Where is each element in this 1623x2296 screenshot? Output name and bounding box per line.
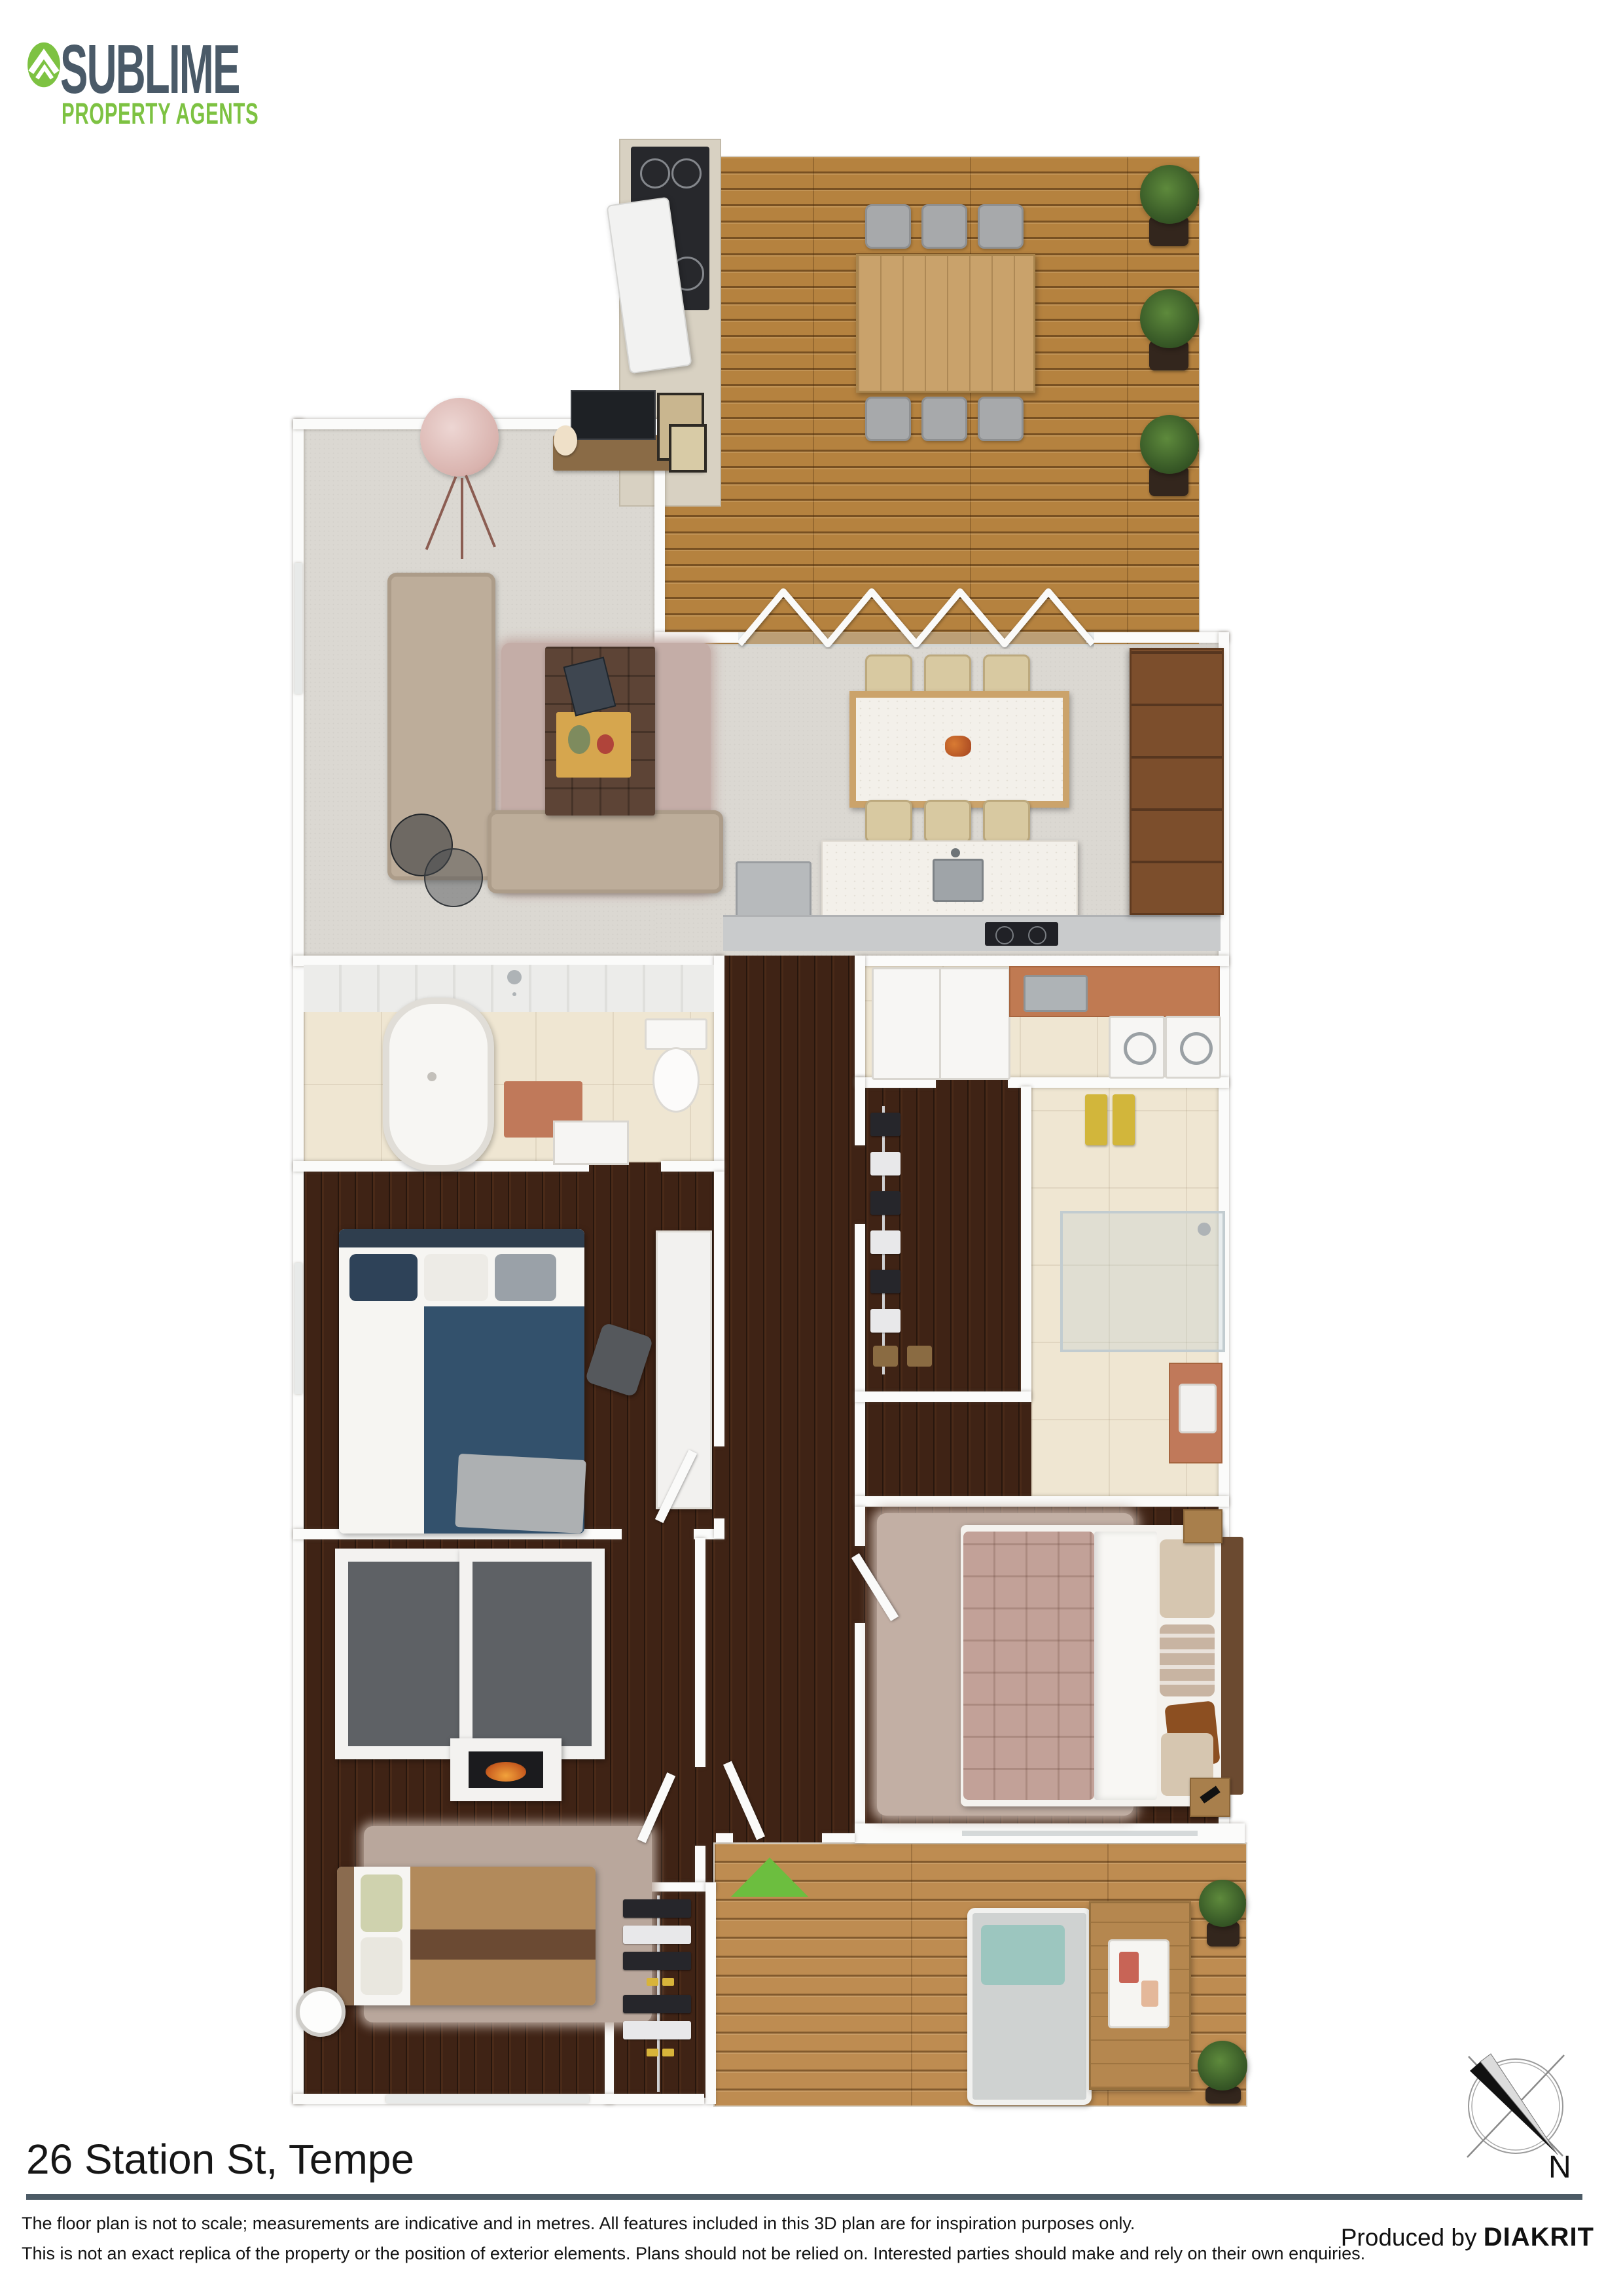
master-duvet-fold: [1094, 1532, 1157, 1800]
compass-label: N: [1548, 2149, 1571, 2185]
wall-robe-ensuite: [1021, 1086, 1031, 1401]
wall-bed3-right-a: [695, 1538, 705, 1767]
laundry-cabinets: [872, 967, 1010, 1080]
tray-decor: [597, 734, 614, 754]
bath-drain: [427, 1072, 437, 1081]
hanging-garment: [623, 1995, 691, 2013]
towel: [1113, 1094, 1135, 1145]
laundry-counter: [1009, 966, 1220, 1017]
tray-decor: [568, 725, 590, 754]
wall-master-bottom-window: [855, 1823, 1245, 1843]
firebox: [469, 1751, 543, 1788]
bed3-pillow: [361, 1874, 402, 1932]
master-quilt: [963, 1532, 1094, 1800]
island-sink: [933, 859, 984, 902]
bed2-headboard: [339, 1229, 584, 1247]
compass: N: [1458, 2046, 1576, 2187]
wall-entry-a: [716, 1833, 733, 1842]
wall-laundry-left: [855, 956, 865, 1086]
kitchen-counter: [723, 915, 1221, 951]
coffee-table: [545, 647, 655, 816]
producer-name: DIAKRIT: [1484, 2223, 1594, 2251]
tray-item: [1141, 1981, 1158, 2007]
picture-frame: [669, 424, 707, 473]
bathtub: [383, 997, 494, 1172]
gold-tray: [556, 712, 631, 778]
window-living-left: [294, 563, 302, 694]
bed3: [337, 1867, 596, 2005]
potted-plant: [1198, 2041, 1247, 2090]
floor-lamp: [420, 398, 499, 476]
wall-bed2-right-b: [714, 1518, 724, 1538]
magazine: [563, 656, 616, 716]
dining-chair: [983, 800, 1030, 843]
bed3-headboard: [337, 1867, 354, 2005]
lamp-leg: [461, 478, 463, 559]
entry-arrow: [731, 1857, 808, 1897]
hanging-garment: [870, 1191, 901, 1215]
dryer-door: [1180, 1032, 1213, 1065]
side-table-glass: [424, 848, 483, 907]
wall-closet-right: [705, 1882, 716, 2104]
shoes: [662, 2049, 674, 2056]
wall-master-left-a: [855, 1507, 865, 1546]
wall-bath-bottom-b: [661, 1161, 724, 1172]
outdoor-chair: [921, 397, 967, 441]
hanging-garment: [623, 1899, 691, 1918]
dining-chair: [924, 800, 971, 843]
bed2-throw: [455, 1454, 586, 1534]
bed2-pillow: [349, 1254, 418, 1301]
produced-by-label: Produced by: [1341, 2224, 1477, 2251]
wall-hall-right-b: [855, 1224, 865, 1507]
towel: [1085, 1094, 1107, 1145]
potted-plant: [1140, 289, 1199, 348]
storage-bag: [907, 1346, 932, 1367]
shower-enclosure: [1060, 1211, 1225, 1352]
outdoor-chair: [978, 397, 1024, 441]
storage-bag: [873, 1346, 898, 1367]
wall-robe-bottom: [855, 1391, 1031, 1402]
hanging-garment: [870, 1270, 901, 1293]
wall-deck-left: [654, 632, 746, 643]
master-pillow: [1160, 1624, 1215, 1696]
laundry-sink: [1024, 975, 1088, 1012]
dryer: [1165, 1016, 1221, 1079]
wall-deck-right: [1086, 632, 1229, 643]
bifold-doors: [738, 586, 1094, 649]
wall-mirror: [296, 1987, 346, 2037]
shoes: [647, 1978, 658, 1986]
bed2-pillow: [424, 1254, 488, 1301]
outdoor-chair: [865, 397, 911, 441]
sink-faucet: [951, 848, 960, 857]
disclaimer-line-1: The floor plan is not to scale; measurem…: [22, 2214, 1135, 2234]
window-bed3-bottom: [386, 2095, 589, 2103]
ensuite-vanity: [1169, 1363, 1222, 1463]
bed2-pillow: [495, 1254, 556, 1301]
toilet-bowl: [652, 1047, 700, 1113]
burner: [995, 926, 1014, 944]
master-pillow: [1160, 1539, 1215, 1618]
address-title: 26 Station St, Tempe: [26, 2135, 414, 2183]
hanging-garment: [623, 2021, 691, 2039]
shower-head: [1198, 1223, 1211, 1236]
bed2: [339, 1229, 584, 1534]
hanging-garment: [623, 1926, 691, 1944]
cooktop: [985, 922, 1058, 946]
master-headboard: [1221, 1537, 1243, 1795]
closet-rail: [657, 1895, 660, 2092]
floor-plan: [0, 0, 1623, 2296]
wall-hall-right-a: [855, 1077, 865, 1145]
page: { "brand": { "name": "SUBLIME", "tagline…: [0, 0, 1623, 2296]
tv-screen: [571, 390, 656, 440]
shower-head: [507, 970, 522, 984]
shoes: [662, 1978, 674, 1986]
bedside-cube: [1190, 1778, 1230, 1817]
sun-lounger: [967, 1908, 1092, 2105]
flame: [486, 1762, 526, 1782]
outdoor-table: [856, 254, 1035, 393]
hanging-garment: [870, 1309, 901, 1333]
bed3-runner: [410, 1929, 596, 1960]
wall-greatroom-bottom-right: [864, 956, 1229, 966]
dining-chair: [865, 800, 912, 843]
bed3-pillow: [361, 1937, 402, 1995]
bed2-runner: [339, 1306, 424, 1534]
disclaimer-line-2: This is not an exact replica of the prop…: [22, 2244, 1365, 2264]
burner: [671, 158, 702, 188]
hanging-garment: [870, 1152, 901, 1175]
tray-item: [1119, 1952, 1139, 1983]
washing-machine: [1109, 1016, 1165, 1079]
footer-divider: [26, 2194, 1582, 2200]
vase: [554, 425, 577, 456]
serving-tray: [1108, 1939, 1169, 2028]
fireplace: [450, 1738, 562, 1801]
wall-master-top: [855, 1496, 1229, 1507]
hanging-garment: [870, 1230, 901, 1254]
washer-door: [1124, 1032, 1156, 1065]
sofa-loveseat: [488, 810, 723, 893]
kitchen-island: [821, 840, 1078, 920]
outdoor-chair: [978, 204, 1024, 249]
remote: [1200, 1785, 1220, 1803]
wall-entry-b: [822, 1833, 855, 1842]
window-bed2-left: [294, 1263, 302, 1394]
wall-bed2-right-a: [714, 1172, 724, 1446]
bedside-cube: [1183, 1509, 1222, 1543]
wall-laundry-bottom-b: [1008, 1077, 1229, 1088]
dining-table: [849, 691, 1069, 808]
outdoor-chair: [921, 204, 967, 249]
hanging-garment: [623, 1952, 691, 1970]
potted-plant: [1140, 165, 1199, 224]
hanging-garment: [870, 1113, 901, 1136]
potted-plant: [1199, 1880, 1246, 1927]
deck-table: [1089, 1901, 1191, 2090]
vanity-sink: [1179, 1384, 1217, 1433]
wall-bath-right: [714, 956, 724, 1172]
toilet: [645, 1018, 707, 1050]
window-master-bottom: [962, 1831, 1198, 1836]
shoes: [647, 2049, 658, 2056]
master-bed: [961, 1525, 1222, 1806]
pantry-cabinet: [1130, 648, 1224, 915]
wall-master-left-b: [855, 1623, 865, 1842]
centerpiece: [945, 736, 971, 757]
wardrobe-box: [459, 1549, 605, 1759]
produced-by: Produced by DIAKRIT: [1165, 2223, 1594, 2252]
burner: [640, 158, 670, 188]
potted-plant: [1140, 415, 1199, 474]
outdoor-chair: [865, 204, 911, 249]
bath-vanity: [553, 1121, 629, 1165]
lounger-pillow: [981, 1925, 1065, 1985]
burner: [1028, 926, 1046, 944]
